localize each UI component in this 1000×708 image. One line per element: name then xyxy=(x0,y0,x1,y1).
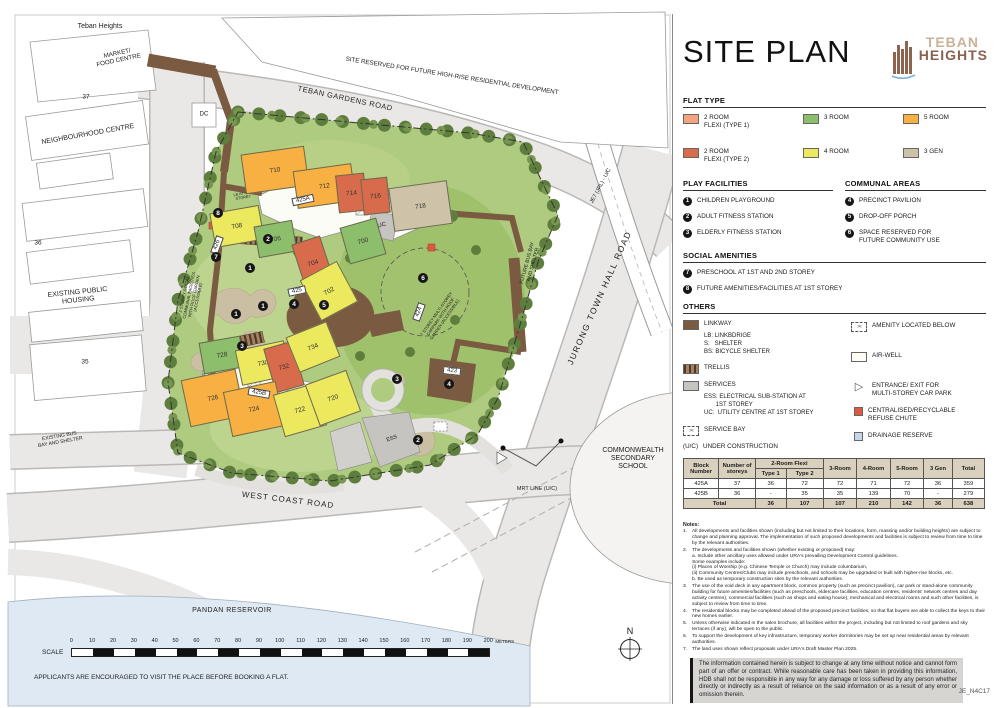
marker-6: 6 xyxy=(418,273,428,283)
service-bay-label: SERVICE BAY xyxy=(704,426,745,434)
scale-ticks: 0102030405060708090100110120130140150160… xyxy=(71,638,488,648)
north-label: N xyxy=(627,626,634,636)
services-swatch xyxy=(683,381,699,391)
scale-segment xyxy=(343,649,364,656)
label-block-37: 37 xyxy=(82,93,89,100)
linkway-sub: LB: LINKBDRIGE S: SHELTER BS: BICYCLE SH… xyxy=(704,332,841,356)
cell: - xyxy=(924,489,952,499)
play-facility-label: CHILDREN PLAYGROUND xyxy=(697,197,775,205)
note-text: To support the development of key infras… xyxy=(692,634,986,646)
note-text: All developments and facilities shown (i… xyxy=(692,529,986,547)
units-table: Block Number Number of storeys 2-Room Fl… xyxy=(683,458,985,509)
note-num: 7. xyxy=(683,647,692,653)
flat-type-swatch xyxy=(803,148,819,158)
marker-4: 4 xyxy=(444,379,454,389)
marker-1: 1 xyxy=(258,301,268,311)
service-bay-icon: >< xyxy=(683,426,699,436)
flat-type-swatch xyxy=(683,114,699,124)
scale-segment xyxy=(468,649,489,656)
flat-type-label: 4 ROOM xyxy=(824,148,849,156)
scale-bar: SCALE 0102030405060708090100110120130140… xyxy=(42,638,490,657)
block-718: 718 xyxy=(388,180,453,232)
reference-code: JE_N4C17 xyxy=(959,688,990,695)
scale-segment xyxy=(427,649,448,656)
col-block: Block Number xyxy=(684,459,719,479)
scale-segment xyxy=(260,649,281,656)
marker-3: 3 xyxy=(392,374,402,384)
col-type1: Type 1 xyxy=(756,469,786,479)
note-num: 4. xyxy=(683,609,692,621)
legend-num-3: 3 xyxy=(683,229,692,238)
flat-type-swatch xyxy=(683,148,699,158)
flat-type-label: 3 GEN xyxy=(924,148,943,156)
scale-segment xyxy=(239,649,260,656)
note-text: Unless otherwise indicated in the sales … xyxy=(692,621,986,633)
note-text: The developments and facilities shown (w… xyxy=(692,548,986,583)
table-row-425B: 425B 36 - 35 35 139 70 - 279 xyxy=(684,489,985,499)
scale-segment xyxy=(364,649,385,656)
scale-segment xyxy=(448,649,469,656)
cell: 70 xyxy=(890,489,924,499)
cell: 36 xyxy=(924,499,952,509)
label-dc: DC xyxy=(200,112,209,119)
flat-type-label: 3 ROOM xyxy=(824,114,849,122)
cell: 425A xyxy=(684,479,719,489)
services-label: SERVICES xyxy=(704,381,736,389)
table-row-425A: 425A 37 36 72 72 71 72 36 359 xyxy=(684,479,985,489)
uc-label: UNDER CONSTRUCTION xyxy=(703,443,778,451)
drainage-label: DRAINAGE RESERVE xyxy=(868,432,933,440)
section-flat-type: FLAT TYPE 2 ROOM FLEXI (TYPE 1) 3 ROOM 5… xyxy=(683,96,986,170)
trellis-swatch xyxy=(683,364,699,374)
col-storeys: Number of storeys xyxy=(719,459,756,479)
col-4room: 4-Room xyxy=(857,459,891,479)
flat-type-label: 5 ROOM xyxy=(924,114,949,122)
flat-type-label: 2 ROOM FLEXI (TYPE 1) xyxy=(704,114,749,129)
table-row-total: Total 36 107 107 210 142 36 638 xyxy=(684,499,985,509)
label-pandan-reservoir: PANDAN RESERVOIR xyxy=(192,607,272,615)
cell: 210 xyxy=(857,499,891,509)
logo-line2: HEIGHTS xyxy=(919,49,988,62)
north-arrow: N xyxy=(616,626,644,664)
cell: 107 xyxy=(823,499,857,509)
notes-heading: Notes: xyxy=(683,522,986,528)
marker-2: 2 xyxy=(413,435,423,445)
flat-type-swatch xyxy=(903,114,919,124)
scale-segments xyxy=(71,648,490,657)
compass-icon xyxy=(617,636,643,662)
section-others: OTHERS LINKWAY LB: LINKBDRIGE S: SHELTER… xyxy=(683,302,986,457)
note-text: The residential blocks may be completed … xyxy=(692,609,986,621)
scale-label: SCALE xyxy=(42,649,63,656)
logo-buildings-icon xyxy=(890,36,916,80)
social-amenities-heading: SOCIAL AMENITIES xyxy=(683,251,986,263)
air-well-swatch xyxy=(851,352,867,362)
scale-segment xyxy=(302,649,323,656)
cell: 107 xyxy=(786,499,823,509)
note-num: 2. xyxy=(683,548,692,583)
cell: 142 xyxy=(890,499,924,509)
col-3room: 3-Room xyxy=(823,459,857,479)
trellis-label: TRELLIS xyxy=(704,364,730,372)
section-notes: Notes: 1.All developments and facilities… xyxy=(683,522,986,654)
marker-2: 2 xyxy=(263,234,273,244)
play-facilities-heading: PLAY FACILITIES xyxy=(683,179,833,191)
note-num: 3. xyxy=(683,584,692,608)
flat-type-swatch xyxy=(803,114,819,124)
others-heading: OTHERS xyxy=(683,302,986,314)
section-units-table: Block Number Number of storeys 2-Room Fl… xyxy=(683,458,986,509)
marker-5: 5 xyxy=(319,300,329,310)
col-total: Total xyxy=(952,459,984,479)
teban-heights-logo: TEBAN HEIGHTS xyxy=(890,36,988,80)
block-706: 706 xyxy=(254,220,298,258)
cell: 35 xyxy=(786,489,823,499)
uc-prefix: (U/C) xyxy=(683,443,698,451)
label-commonwealth-school: COMMONWEALTH SECONDARY SCHOOL xyxy=(602,447,663,471)
block-716: 716 xyxy=(360,177,391,216)
sheet-divider xyxy=(672,14,673,704)
legend-panel: SITE PLAN TEBAN HEIGHTS FLAT TYPE xyxy=(680,0,992,708)
scale-segment xyxy=(177,649,198,656)
mscp-entrance-icon: ▷ xyxy=(851,382,867,392)
marker-4: 4 xyxy=(289,299,299,309)
disclaimer-box: The information contained herein is subj… xyxy=(690,658,963,703)
section-social-amenities: SOCIAL AMENITIES 7PRESCHOOL AT 1ST AND 2… xyxy=(683,251,986,301)
services-sub: ESS: ELECTRICAL SUB-STATION AT 1ST STORE… xyxy=(704,393,841,417)
col-5room: 5-Room xyxy=(890,459,924,479)
scale-segment xyxy=(322,649,343,656)
marker-3: 3 xyxy=(237,341,247,351)
social-amenity-label: PRESCHOOL AT 1ST AND 2ND STOREY xyxy=(697,269,815,277)
cell: 36 xyxy=(756,499,786,509)
cell: 36 xyxy=(924,479,952,489)
scale-units: METERS xyxy=(495,639,514,644)
marker-7: 7 xyxy=(211,252,221,262)
label-block-36: 36 xyxy=(34,239,41,246)
footer-note: APPLICANTS ARE ENCOURAGED TO VISIT THE P… xyxy=(34,674,288,681)
marker-1: 1 xyxy=(245,263,255,273)
cell: Total xyxy=(684,499,756,509)
legend-num-8: 8 xyxy=(683,285,692,294)
communal-areas-heading: COMMUNAL AREAS xyxy=(845,179,986,191)
cell: 72 xyxy=(823,479,857,489)
amenity-below-icon: >< xyxy=(851,322,867,332)
linkway-label: LINKWAY xyxy=(704,320,732,328)
refuse-chute-swatch xyxy=(854,407,863,416)
col-3gen: 3 Gen xyxy=(924,459,952,479)
scale-segment xyxy=(218,649,239,656)
cell: 279 xyxy=(952,489,984,499)
flat-type-swatch xyxy=(903,148,919,158)
cell: 72 xyxy=(786,479,823,489)
cell: 139 xyxy=(857,489,891,499)
scale-segment xyxy=(156,649,177,656)
cell: 359 xyxy=(952,479,984,489)
drainage-swatch xyxy=(854,432,863,441)
marker-1: 1 xyxy=(231,309,241,319)
scale-segment xyxy=(406,649,427,656)
note-num: 6. xyxy=(683,634,692,646)
legend-num-1: 1 xyxy=(683,197,692,206)
note-text: The use of the void deck in any apartmen… xyxy=(692,584,986,608)
cell: - xyxy=(756,489,786,499)
amenity-below-label: AMENITY LOCATED BELOW xyxy=(872,322,955,330)
refuse-chute-label: CENTRALISED/RECYCLABLE REFUSE CHUTE xyxy=(868,407,955,422)
sheet-header: Teban Heights xyxy=(78,23,123,31)
play-facility-label: ADULT FITNESS STATION xyxy=(697,213,774,221)
mscp-entrance-label: ENTRANCE/ EXIT FOR MULTI-STOREY CAR PARK xyxy=(872,382,952,397)
scale-segment xyxy=(385,649,406,656)
cell: 36 xyxy=(719,489,756,499)
cell: 425B xyxy=(684,489,719,499)
site-plan-map: Teban Heights MARKET/ FOOD CENTRE SITE R… xyxy=(0,0,672,708)
scale-segment xyxy=(72,649,93,656)
legend-num-5: 5 xyxy=(845,213,854,222)
cell: 72 xyxy=(890,479,924,489)
note-text: The land uses shown reflect proposals un… xyxy=(692,647,986,653)
note-num: 1. xyxy=(683,529,692,547)
linkway-swatch xyxy=(683,320,699,330)
col-type2: Type 2 xyxy=(786,469,823,479)
page-title: SITE PLAN xyxy=(683,34,851,70)
site-plan-sheet: Teban Heights MARKET/ FOOD CENTRE SITE R… xyxy=(0,0,1000,708)
note-num: 5. xyxy=(683,621,692,633)
social-amenity-label: FUTURE AMENITIES/FACILITIES AT 1ST STORE… xyxy=(697,285,842,293)
communal-area-label: DROP-OFF PORCH xyxy=(859,213,916,221)
cell: 71 xyxy=(857,479,891,489)
play-facility-label: ELDERLY FITNESS STATION xyxy=(697,229,782,237)
cell: 37 xyxy=(719,479,756,489)
cell: 638 xyxy=(952,499,984,509)
scale-segment xyxy=(281,649,302,656)
scale-segment xyxy=(93,649,114,656)
flat-type-heading: FLAT TYPE xyxy=(683,96,986,108)
communal-area-label: SPACE RESERVED FOR FUTURE COMMUNITY USE xyxy=(859,229,940,244)
scale-segment xyxy=(135,649,156,656)
air-well-label: AIR-WELL xyxy=(872,352,902,360)
flat-type-label: 2 ROOM FLEXI (TYPE 2) xyxy=(704,148,749,163)
col-2room: 2-Room Flexi xyxy=(756,459,824,469)
legend-num-7: 7 xyxy=(683,269,692,278)
legend-num-2: 2 xyxy=(683,213,692,222)
label-block-35: 35 xyxy=(81,358,88,365)
scale-segment xyxy=(114,649,135,656)
legend-num-4: 4 xyxy=(845,197,854,206)
marker-8: 8 xyxy=(213,208,223,218)
cell: 35 xyxy=(823,489,857,499)
cell: 36 xyxy=(756,479,786,489)
scale-segment xyxy=(197,649,218,656)
label-mrt-line: MRT LINE (U/C) xyxy=(517,486,557,492)
communal-area-label: PRECINCT PAVILION xyxy=(859,197,921,205)
legend-num-6: 6 xyxy=(845,229,854,238)
section-facilities: PLAY FACILITIES 1CHILDREN PLAYGROUND 2AD… xyxy=(683,179,986,251)
